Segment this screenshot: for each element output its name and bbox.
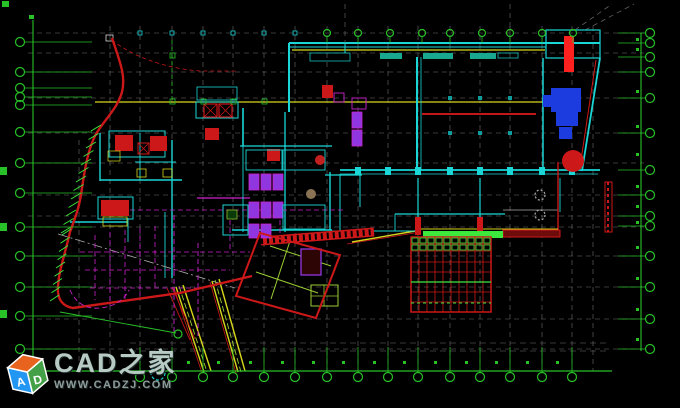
watermark: A D CAD之家 WWW.CADZJ.COM <box>6 350 177 398</box>
floor-plan-drawing <box>0 0 680 408</box>
cad-viewport: A D CAD之家 WWW.CADZJ.COM <box>0 0 680 408</box>
watermark-brand: CAD之家 <box>54 350 177 377</box>
watermark-url: WWW.CADZJ.COM <box>54 380 177 391</box>
cadzj-logo-cube-icon: A D <box>1 347 55 402</box>
